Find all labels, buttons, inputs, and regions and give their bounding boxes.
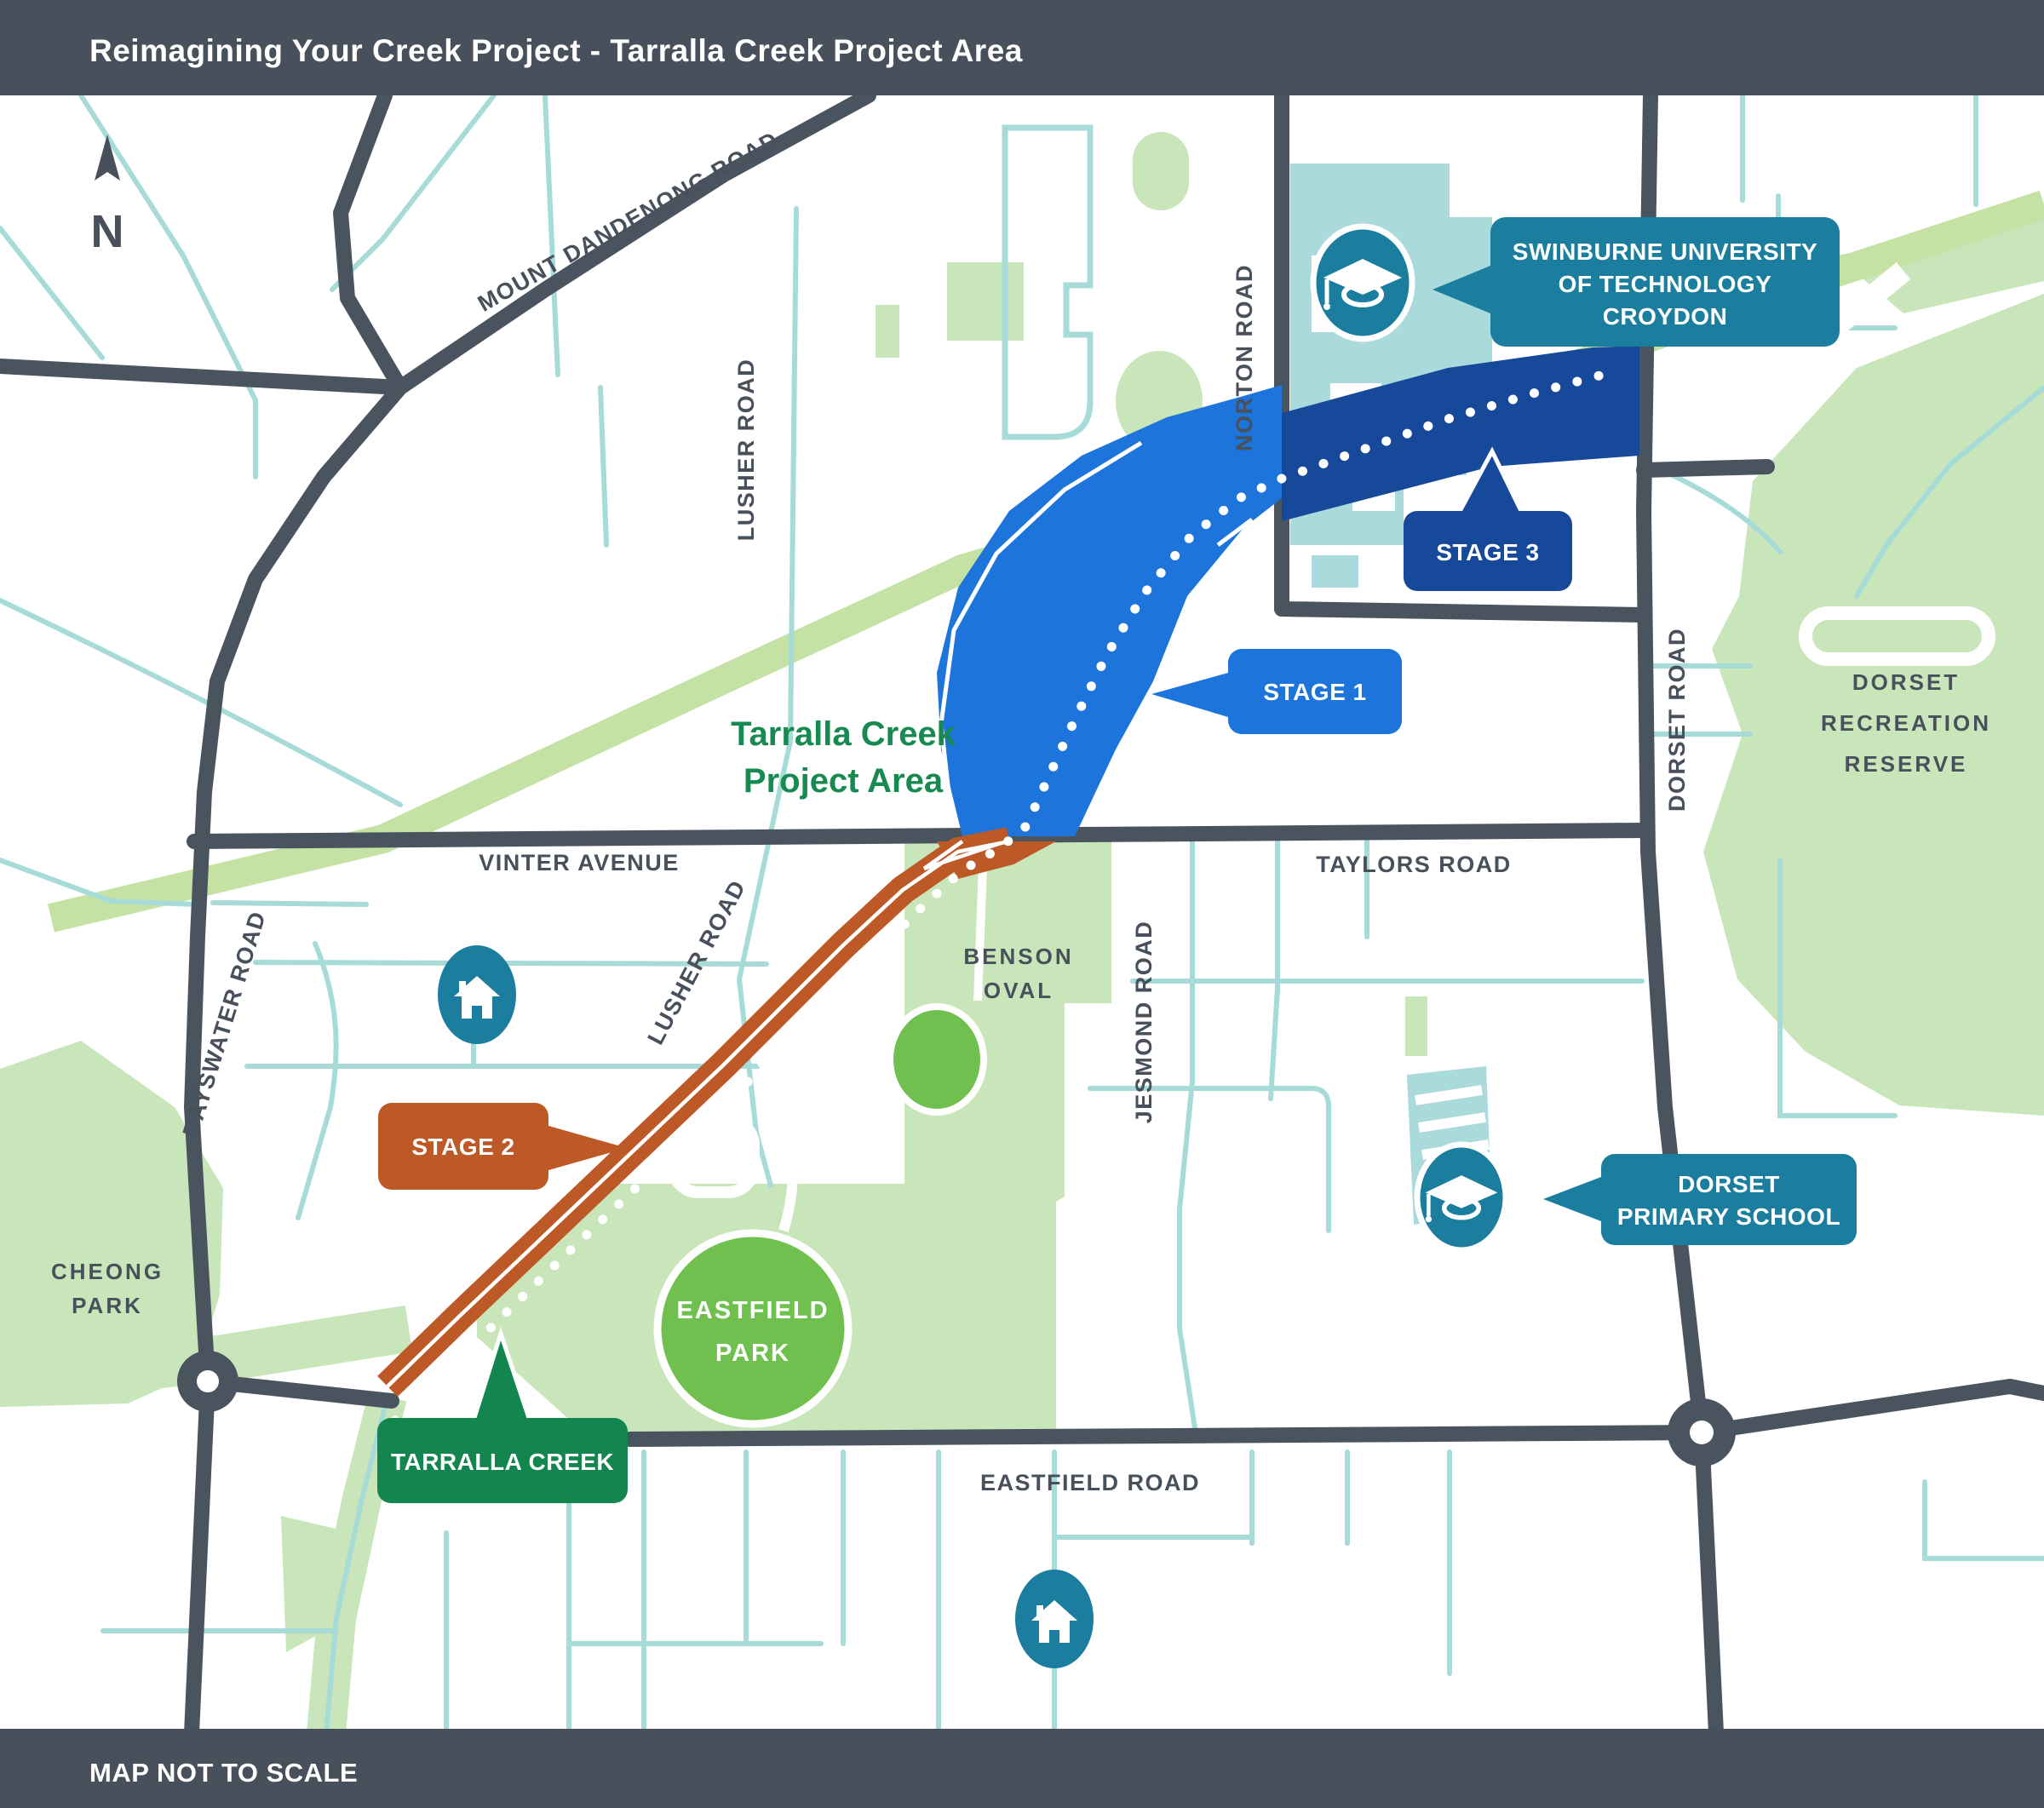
dorset-reserve-label-2: RECREATION: [1821, 710, 1991, 736]
eastfield-road-line: [630, 1432, 1702, 1439]
green-building: [947, 262, 1024, 341]
stage2-callout-label: STAGE 2: [411, 1134, 514, 1160]
cheong-park-label-1: CHEONG: [51, 1259, 164, 1284]
page-title: Reimagining Your Creek Project - Tarrall…: [89, 33, 1023, 68]
swinburne-callout[interactable]: SWINBURNE UNIVERSITY OF TECHNOLOGY CROYD…: [1433, 217, 1840, 347]
west-road-line: [0, 366, 400, 387]
green-bar: [1405, 996, 1427, 1056]
dorset-primary-callout[interactable]: DORSET PRIMARY SCHOOL: [1543, 1154, 1857, 1245]
stage1-callout[interactable]: STAGE 1: [1151, 649, 1402, 734]
lusher-road-upper-label: LUSHER ROAD: [733, 359, 759, 542]
north-label: N: [91, 206, 124, 257]
tarralla-creek-callout-label: TARRALLA CREEK: [391, 1449, 614, 1475]
dorset-reserve-label-1: DORSET: [1852, 669, 1960, 695]
dorset-reserve-label-3: RESERVE: [1845, 751, 1968, 777]
dorset-east-arm: [1702, 1386, 2044, 1432]
jesmond-road-label: JESMOND ROAD: [1131, 921, 1157, 1124]
swinburne-label-1: SWINBURNE UNIVERSITY: [1513, 238, 1817, 265]
project-area-label-2: Project Area: [744, 762, 944, 800]
stage1-area: [937, 385, 1282, 836]
map-page: MOUNT DANDENONG ROAD LUSHER ROAD LUSHER …: [0, 0, 2044, 1808]
green-oval-upper: [1133, 132, 1189, 210]
dorset-recreation-reserve-area: [1703, 294, 2044, 1116]
stage3-callout-label: STAGE 3: [1436, 539, 1539, 565]
stage1-callout-label: STAGE 1: [1263, 679, 1366, 705]
project-area-label: Tarralla Creek Project Area: [731, 715, 956, 800]
roundabout-west: [177, 1351, 238, 1412]
reserve-north-stub: [1644, 467, 1767, 470]
dorset-primary-label-1: DORSET: [1678, 1171, 1780, 1197]
roundabout-east: [1668, 1398, 1736, 1466]
swinburne-poi[interactable]: [1313, 227, 1412, 339]
green-patch: [876, 305, 899, 358]
swinburne-label-3: CROYDON: [1603, 303, 1728, 330]
eastfield-road-label: EASTFIELD ROAD: [980, 1470, 1200, 1495]
eastfield-park-label-1: EASTFIELD: [676, 1297, 829, 1324]
home-marker-eastfield[interactable]: [1015, 1570, 1094, 1668]
taylors-road-label: TAYLORS ROAD: [1316, 852, 1512, 877]
map-scale-note: MAP NOT TO SCALE: [89, 1758, 358, 1788]
dorset-road-label: DORSET ROAD: [1664, 628, 1690, 812]
dorset-primary-label-2: PRIMARY SCHOOL: [1617, 1203, 1840, 1230]
eastfield-park-circle: [657, 1233, 848, 1424]
cheong-park-label-2: PARK: [72, 1293, 143, 1318]
mount-dandenong-label: MOUNT DANDENONG ROAD: [474, 127, 783, 317]
dorset-primary-poi[interactable]: [1417, 1145, 1506, 1250]
benson-oval-field: [890, 1007, 984, 1112]
project-area-label-1: Tarralla Creek: [731, 715, 956, 753]
benson-oval-label-1: BENSON: [963, 944, 1073, 969]
swinburne-label-2: OF TECHNOLOGY: [1559, 271, 1772, 297]
project-area-map: MOUNT DANDENONG ROAD LUSHER ROAD LUSHER …: [0, 0, 2044, 1808]
benson-oval-label-2: OVAL: [984, 978, 1054, 1003]
eastfield-park-label-2: PARK: [715, 1340, 790, 1367]
norton-road-label: NORTON ROAD: [1232, 264, 1257, 451]
home-marker-vinter[interactable]: [438, 945, 516, 1044]
inset-bottom-road-line: [1282, 609, 1644, 615]
vinter-avenue-label: VINTER AVENUE: [479, 850, 680, 875]
